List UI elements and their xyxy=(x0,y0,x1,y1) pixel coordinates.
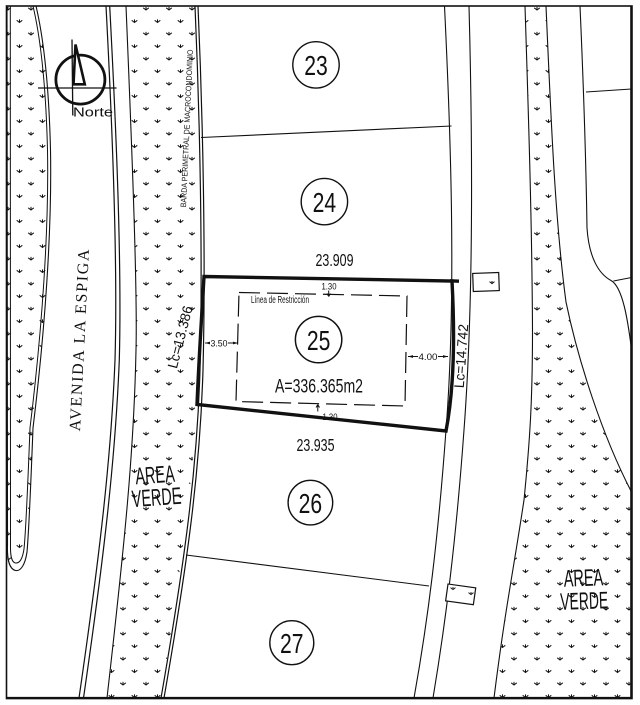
svg-text:27: 27 xyxy=(280,628,304,659)
svg-text:VERDE: VERDE xyxy=(560,587,609,616)
svg-text:Norte: Norte xyxy=(73,106,113,120)
svg-text:26: 26 xyxy=(299,488,323,519)
svg-text:A=336.365m2: A=336.365m2 xyxy=(275,377,363,398)
svg-text:25: 25 xyxy=(307,325,331,356)
svg-text:3.50: 3.50 xyxy=(211,339,228,349)
svg-text:23.935: 23.935 xyxy=(297,435,335,455)
svg-text:23.909: 23.909 xyxy=(316,250,354,270)
svg-text:1.30: 1.30 xyxy=(322,282,337,292)
svg-text:23: 23 xyxy=(304,50,328,81)
svg-text:VERDE: VERDE xyxy=(131,483,182,513)
svg-text:24: 24 xyxy=(313,187,337,218)
svg-text:4.00: 4.00 xyxy=(419,352,438,362)
svg-text:1.30: 1.30 xyxy=(323,412,338,422)
svg-text:Línea de Restricción: Línea de Restricción xyxy=(251,295,309,306)
